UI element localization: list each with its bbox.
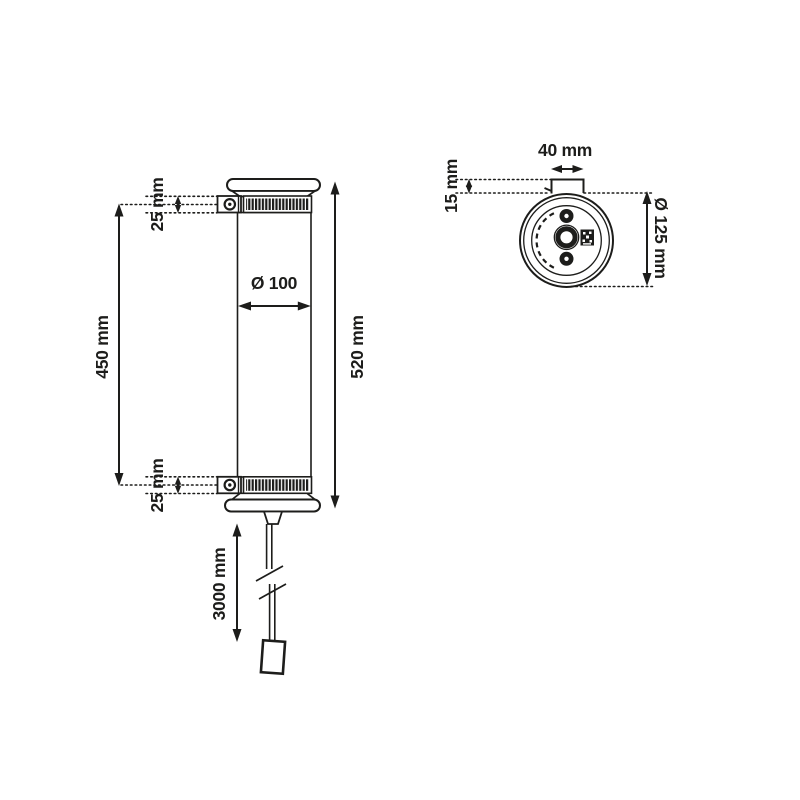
dim-3000mm: 3000 mm (209, 524, 241, 643)
technical-drawing-page: 450 mm 520 mm Ø 100 3000 mm (0, 0, 800, 800)
dim-15mm-label: 15 mm (441, 159, 461, 213)
cable-break-mark (259, 584, 286, 599)
top-cap (227, 179, 320, 191)
bracket-tab-tick (545, 188, 552, 191)
front-view: 450 mm 520 mm Ø 100 3000 mm (92, 178, 367, 674)
body-outer-circle (520, 194, 613, 287)
bottom-band (244, 477, 312, 494)
dim-40mm: 40 mm (538, 140, 592, 173)
bottom-cap (225, 500, 320, 512)
bracket-tab (552, 180, 584, 194)
dim-25mm-top: 25 mm (121, 178, 217, 232)
dim-520mm-label: 520 mm (347, 315, 367, 378)
technical-drawing-canvas: 450 mm 520 mm Ø 100 3000 mm (0, 0, 800, 800)
top-clamp (218, 196, 242, 213)
dim-450mm: 450 mm (92, 204, 123, 487)
dim-520mm: 520 mm (331, 182, 368, 509)
label-block (581, 230, 595, 246)
screw-hole-bottom (560, 252, 574, 266)
dim-125mm-label: Ø 125 mm (651, 197, 671, 278)
dim-25mm-bottom: 25 mm (121, 459, 217, 513)
screw-hole-top (560, 209, 574, 223)
top-view: 40 mm 15 mm Ø 125 mm (441, 140, 671, 287)
cable-break-mark (256, 566, 283, 581)
dim-15mm: 15 mm (441, 159, 551, 213)
cable-plug (261, 640, 285, 673)
bottom-clamp (218, 477, 242, 494)
power-cable (256, 524, 286, 641)
top-band (244, 196, 312, 213)
dim-25mm-bottom-label: 25 mm (147, 459, 167, 513)
dim-40mm-label: 40 mm (538, 140, 592, 160)
dim-3000mm-label: 3000 mm (209, 548, 229, 621)
dim-100mm-label: Ø 100 (251, 273, 298, 293)
tube-body (238, 213, 312, 478)
dim-25mm-top-label: 25 mm (147, 178, 167, 232)
cable-strain-relief (264, 512, 282, 525)
dim-450mm-label: 450 mm (92, 315, 112, 378)
